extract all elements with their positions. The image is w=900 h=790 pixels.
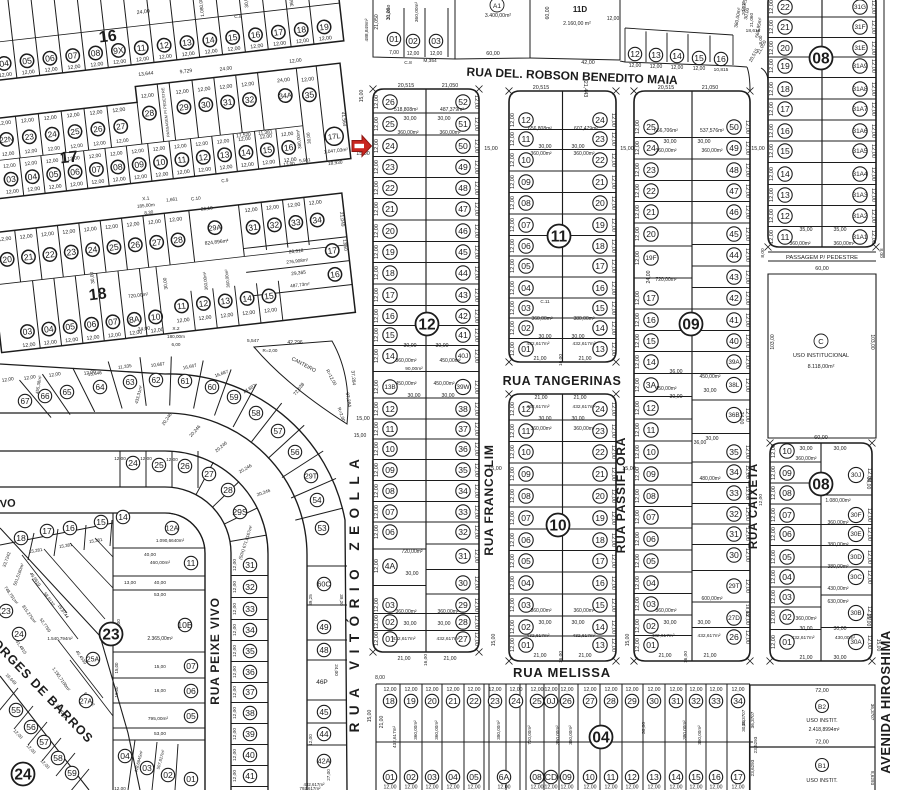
svg-text:12,00: 12,00 [374,598,380,612]
svg-text:51: 51 [458,119,468,129]
svg-text:12,00: 12,00 [635,510,641,524]
svg-text:12,00: 12,00 [114,786,126,790]
svg-text:44: 44 [729,250,739,260]
svg-text:65: 65 [62,388,72,397]
svg-text:30E: 30E [850,531,861,538]
svg-text:12,00: 12,00 [744,313,750,327]
svg-text:12,00: 12,00 [635,334,641,348]
svg-text:21: 21 [385,204,395,214]
svg-text:58: 58 [251,409,261,418]
svg-text:32: 32 [269,219,280,230]
svg-text:30,00: 30,00 [539,144,552,150]
svg-text:12,00: 12,00 [610,196,616,210]
svg-text:50: 50 [729,122,739,132]
svg-text:16: 16 [595,283,605,293]
svg-text:720,00m²: 720,00m² [655,277,676,283]
svg-text:10: 10 [521,447,531,457]
svg-text:33: 33 [458,507,468,517]
svg-text:12,00: 12,00 [610,175,616,189]
svg-text:12,00: 12,00 [866,508,872,522]
svg-text:08: 08 [385,486,395,496]
svg-text:12,00: 12,00 [374,402,380,416]
svg-text:19F: 19F [645,255,656,262]
svg-text:VO: VO [0,497,17,510]
svg-text:26: 26 [729,632,739,642]
svg-text:0J: 0J [546,696,555,706]
svg-text:18: 18 [88,285,108,304]
svg-text:12,00: 12,00 [561,785,574,790]
svg-text:360,00m²: 360,00m² [414,1,420,22]
svg-text:USO INSTIT.: USO INSTIT. [806,778,837,784]
svg-text:12,00: 12,00 [635,355,641,369]
svg-text:518,808m²: 518,808m² [394,107,418,113]
svg-text:12,00: 12,00 [771,635,777,649]
svg-text:36: 36 [458,444,468,454]
svg-text:12,00: 12,00 [866,550,872,564]
svg-text:14: 14 [780,169,790,179]
svg-text:12,00: 12,00 [870,230,876,244]
svg-text:30,00: 30,00 [698,139,711,145]
svg-text:03: 03 [427,772,437,782]
svg-text:01: 01 [385,772,395,782]
svg-text:14: 14 [672,51,682,61]
svg-text:12,00: 12,00 [510,402,516,416]
svg-text:60,00: 60,00 [815,266,829,272]
svg-text:07: 07 [521,513,531,523]
svg-text:12,00: 12,00 [629,63,642,69]
svg-text:06: 06 [646,534,656,544]
svg-text:12,00: 12,00 [114,456,126,461]
svg-text:1.080,00m²: 1.080,00m² [825,498,851,504]
svg-text:12,00: 12,00 [447,687,460,693]
svg-text:21,050: 21,050 [386,4,392,19]
svg-text:12,00: 12,00 [626,687,639,693]
svg-text:12,00: 12,00 [635,184,641,198]
svg-text:04: 04 [448,772,458,782]
svg-text:12,00: 12,00 [510,218,516,232]
svg-text:24: 24 [14,629,24,639]
svg-text:12,00: 12,00 [473,505,479,519]
svg-text:11: 11 [522,134,531,144]
svg-text:360,00m²: 360,00m² [827,520,848,526]
svg-text:12,00: 12,00 [710,785,723,790]
svg-text:30,00: 30,00 [539,416,552,422]
svg-text:01: 01 [521,640,531,650]
svg-text:22: 22 [595,155,605,165]
svg-text:05: 05 [186,711,196,721]
svg-text:12,00: 12,00 [635,378,641,392]
svg-text:23: 23 [102,626,120,643]
svg-text:12,00: 12,00 [635,227,641,241]
svg-text:460,00m²: 460,00m² [150,560,171,566]
svg-text:360,00m²: 360,00m² [395,609,416,615]
svg-text:12,00: 12,00 [510,511,516,525]
svg-text:12,00: 12,00 [744,270,750,284]
svg-text:53: 53 [317,524,327,533]
svg-text:38: 38 [245,708,255,718]
svg-text:12,00: 12,00 [635,251,641,265]
svg-text:12,00: 12,00 [610,424,616,438]
svg-text:12,00: 12,00 [769,167,775,181]
svg-text:12,00: 12,00 [610,132,616,146]
svg-text:29: 29 [627,696,637,706]
svg-text:16: 16 [283,142,294,153]
svg-text:07: 07 [186,661,196,671]
svg-text:C.8: C.8 [404,60,412,66]
svg-text:12,00: 12,00 [610,342,616,356]
svg-text:11: 11 [177,154,187,165]
svg-text:33: 33 [245,604,255,614]
svg-text:12,00: 12,00 [405,687,418,693]
svg-text:27: 27 [116,122,127,132]
svg-text:03: 03 [385,600,395,610]
svg-text:31A7: 31A7 [853,106,868,113]
svg-text:21,050: 21,050 [442,83,459,89]
svg-text:12,00: 12,00 [744,630,750,644]
svg-text:180,00m: 180,00m [167,334,185,339]
svg-text:05: 05 [48,169,59,180]
svg-text:31: 31 [671,696,681,706]
svg-text:04: 04 [120,751,130,761]
svg-text:27D: 27D [728,615,740,622]
svg-text:33: 33 [729,488,739,498]
svg-text:12,00: 12,00 [870,0,876,14]
svg-text:12,00: 12,00 [635,120,641,134]
svg-text:27A: 27A [80,699,93,706]
svg-text:05: 05 [521,556,531,566]
svg-text:12,00: 12,00 [473,95,479,109]
svg-text:22: 22 [780,2,790,12]
svg-text:12,00: 12,00 [744,355,750,369]
svg-text:10: 10 [646,447,656,457]
svg-text:36: 36 [245,667,255,677]
svg-text:12,00: 12,00 [744,205,750,219]
svg-text:8,00: 8,00 [878,248,884,258]
svg-text:12,00: 12,00 [473,525,479,539]
svg-text:12,00: 12,00 [610,239,616,253]
svg-text:06: 06 [782,529,792,539]
svg-text:24,00: 24,00 [738,412,744,425]
svg-text:04: 04 [0,58,10,69]
svg-text:12,00: 12,00 [690,687,703,693]
svg-text:432,617m²: 432,617m² [573,404,596,410]
svg-text:12,00: 12,00 [468,687,481,693]
svg-text:30,00: 30,00 [800,446,813,452]
svg-text:12,00: 12,00 [607,16,620,22]
svg-text:12,00: 12,00 [426,687,439,693]
svg-text:12,00: 12,00 [670,785,683,790]
svg-text:48: 48 [319,646,329,655]
svg-text:360,00m²: 360,00m² [573,608,594,614]
svg-text:30,00: 30,00 [243,0,250,8]
svg-text:12,00: 12,00 [744,334,750,348]
svg-text:432,617m²: 432,617m² [698,633,721,639]
svg-text:2.160,00 m²: 2.160,00 m² [563,21,591,27]
svg-text:15,00: 15,00 [114,662,119,674]
svg-text:09: 09 [562,772,572,782]
svg-text:06: 06 [70,166,81,177]
svg-text:29T: 29T [305,472,318,481]
svg-text:12,00: 12,00 [635,141,641,155]
svg-text:16: 16 [595,578,605,588]
svg-text:360,00m²: 360,00m² [795,456,816,462]
svg-text:20,515: 20,515 [741,1,746,15]
svg-text:12,00: 12,00 [769,0,775,14]
svg-text:15,00: 15,00 [354,433,367,439]
svg-text:19: 19 [595,513,605,523]
svg-text:12,00: 12,00 [635,205,641,219]
svg-text:26: 26 [130,239,141,250]
svg-text:B1: B1 [818,763,826,770]
svg-text:12,00: 12,00 [473,380,479,394]
svg-text:600,00m²: 600,00m² [701,596,722,602]
svg-text:12,00: 12,00 [635,401,641,415]
svg-text:360,00m²: 360,00m² [697,725,702,745]
svg-text:25: 25 [385,119,395,129]
svg-text:3.400,00m²: 3.400,00m² [485,13,512,19]
svg-text:24: 24 [595,404,605,414]
svg-text:12,00: 12,00 [405,785,418,790]
svg-text:12,00: 12,00 [648,687,661,693]
svg-text:12,00: 12,00 [374,95,380,109]
svg-text:46P: 46P [316,679,328,686]
svg-text:30,00: 30,00 [438,116,451,122]
svg-text:36,00: 36,00 [694,440,707,446]
svg-text:RUA TANGERINAS: RUA TANGERINAS [503,374,622,388]
svg-text:11D: 11D [573,5,587,14]
svg-text:12,00: 12,00 [426,785,439,790]
svg-text:12,00: 12,00 [384,785,397,790]
svg-text:28: 28 [458,617,468,627]
svg-text:13: 13 [595,640,605,650]
svg-text:10: 10 [549,517,566,534]
svg-text:40: 40 [729,336,739,346]
svg-text:27: 27 [585,696,595,706]
svg-text:12,00: 12,00 [374,505,380,519]
svg-text:656,808m²: 656,808m² [528,126,552,132]
svg-text:15,00: 15,00 [356,416,370,422]
svg-text:13B: 13B [384,384,395,391]
svg-text:12: 12 [198,298,209,309]
svg-text:31E: 31E [854,45,865,52]
svg-text:12,00: 12,00 [473,181,479,195]
svg-text:12: 12 [198,152,209,163]
svg-text:17: 17 [595,261,605,271]
svg-text:23: 23 [595,134,605,144]
svg-text:9X: 9X [113,45,125,56]
svg-text:12,00: 12,00 [510,113,516,127]
svg-text:12,00: 12,00 [671,65,684,71]
svg-text:41: 41 [458,330,468,340]
svg-text:12,00: 12,00 [510,342,516,356]
svg-text:12,00: 12,00 [232,603,238,615]
svg-text:450,00m²: 450,00m² [699,374,720,380]
svg-text:12,00: 12,00 [232,645,238,657]
svg-text:35: 35 [245,646,255,656]
svg-text:12,00: 12,00 [374,202,380,216]
svg-text:RUA CAIXETA: RUA CAIXETA [748,463,760,549]
svg-text:12,00: 12,00 [610,281,616,295]
svg-text:12,00: 12,00 [771,550,777,564]
svg-text:AVENIDA HIROSHIMA: AVENIDA HIROSHIMA [878,630,893,774]
svg-text:30,00: 30,00 [834,446,847,452]
svg-text:21,00: 21,00 [704,653,717,659]
svg-text:12,00: 12,00 [769,124,775,138]
svg-text:30,00: 30,00 [704,388,717,394]
svg-text:30,00: 30,00 [539,334,552,340]
svg-text:12,00: 12,00 [635,576,641,590]
svg-text:08: 08 [782,488,792,498]
svg-text:02: 02 [408,36,418,46]
svg-text:30,00: 30,00 [436,343,449,349]
svg-text:12: 12 [630,49,640,59]
svg-text:12,00: 12,00 [650,64,663,70]
svg-text:13: 13 [219,149,230,160]
svg-text:12,00: 12,00 [374,463,380,477]
svg-text:12,00: 12,00 [374,117,380,131]
svg-text:03: 03 [431,36,441,46]
svg-text:42A: 42A [318,757,331,766]
svg-text:13,00: 13,00 [124,580,136,586]
svg-text:C: C [818,337,824,346]
svg-text:17: 17 [273,27,284,38]
svg-text:103,00: 103,00 [869,334,875,350]
svg-text:12,00: 12,00 [870,59,876,73]
svg-text:12,00: 12,00 [430,51,443,57]
svg-text:22N: 22N [0,134,14,145]
svg-text:44: 44 [458,268,468,278]
svg-text:12,00: 12,00 [866,527,872,541]
svg-text:12,00: 12,00 [648,785,661,790]
svg-text:03: 03 [22,326,33,337]
svg-text:27: 27 [204,469,214,479]
svg-text:12,00: 12,00 [744,378,750,392]
svg-text:12,00: 12,00 [232,624,238,636]
svg-text:14: 14 [595,323,605,333]
svg-text:11: 11 [136,42,146,53]
svg-text:10B: 10B [177,620,193,630]
svg-text:15: 15 [595,600,605,610]
svg-text:20: 20 [427,696,437,706]
svg-text:12,00: 12,00 [545,785,558,790]
svg-text:17: 17 [42,526,52,536]
svg-text:12,00: 12,00 [374,484,380,498]
svg-text:18: 18 [595,535,605,545]
svg-text:21,00: 21,00 [659,653,672,659]
svg-text:14: 14 [646,357,656,367]
svg-text:792,617m²: 792,617m² [300,786,322,790]
svg-text:36,3707: 36,3707 [870,704,875,721]
svg-text:18: 18 [780,84,790,94]
svg-text:12,00: 12,00 [771,570,777,584]
svg-text:53,00: 53,00 [154,592,166,598]
svg-text:12,00: 12,00 [610,598,616,612]
svg-text:09: 09 [782,468,792,478]
svg-text:30: 30 [649,696,659,706]
svg-text:42,00: 42,00 [581,60,595,66]
svg-text:31: 31 [729,529,739,539]
svg-text:12,00: 12,00 [374,160,380,174]
svg-text:31: 31 [458,551,468,561]
svg-text:12,00: 12,00 [473,349,479,363]
svg-text:12,00: 12,00 [769,230,775,244]
svg-text:45: 45 [729,229,739,239]
svg-text:4A: 4A [385,561,396,571]
svg-text:12,00: 12,00 [473,288,479,302]
svg-text:30F: 30F [850,512,861,519]
svg-text:12,00: 12,00 [374,442,380,456]
svg-text:30C: 30C [850,574,862,581]
svg-text:12,00: 12,00 [510,445,516,459]
svg-text:30,00: 30,00 [641,722,647,734]
svg-text:12,00: 12,00 [610,153,616,167]
svg-text:21: 21 [448,696,458,706]
svg-text:12,00: 12,00 [744,248,750,262]
svg-text:432,617m²: 432,617m² [527,341,550,347]
svg-text:12,00: 12,00 [769,102,775,116]
svg-text:15,00: 15,00 [488,466,502,472]
svg-text:28: 28 [144,108,155,119]
svg-text:30: 30 [200,99,211,110]
svg-text:12,00: 12,00 [610,638,616,652]
svg-text:8,00: 8,00 [758,35,763,44]
svg-text:12,00: 12,00 [744,291,750,305]
svg-text:360,00m²: 360,00m² [530,608,551,614]
svg-text:8,30: 8,30 [144,210,154,216]
svg-text:06: 06 [186,686,196,696]
svg-text:C.8: C.8 [234,14,242,20]
svg-text:31G: 31G [854,4,866,11]
svg-text:62: 62 [151,376,161,385]
svg-text:66: 66 [40,392,50,401]
svg-text:8.118,00m²: 8.118,00m² [808,364,835,370]
svg-text:17: 17 [646,293,656,303]
svg-text:30,00: 30,00 [406,571,419,577]
svg-text:12,00: 12,00 [374,139,380,153]
svg-text:12,00: 12,00 [635,291,641,305]
svg-text:09: 09 [521,177,531,187]
svg-text:12,00: 12,00 [610,218,616,232]
svg-text:12,00: 12,00 [407,51,420,57]
svg-text:360,00m²: 360,00m² [789,241,810,247]
svg-text:31A3: 31A3 [853,192,868,199]
svg-text:18: 18 [595,241,605,251]
svg-text:12,00: 12,00 [635,489,641,503]
svg-text:19: 19 [595,220,605,230]
svg-text:360,00m²: 360,00m² [701,148,722,154]
svg-text:40,00: 40,00 [144,552,156,558]
svg-text:34: 34 [458,486,468,496]
svg-text:21,00: 21,00 [579,653,592,659]
svg-text:12,00: 12,00 [732,785,745,790]
svg-text:12,00: 12,00 [870,144,876,158]
svg-text:17L: 17L [327,131,341,141]
svg-text:39,20: 39,20 [339,594,344,606]
svg-text:23: 23 [385,162,395,172]
svg-text:13: 13 [595,344,605,354]
svg-text:12,00: 12,00 [561,687,574,693]
svg-text:12,00: 12,00 [769,41,775,55]
svg-text:35,00: 35,00 [800,227,813,233]
svg-text:08: 08 [812,50,830,67]
svg-text:12,00: 12,00 [610,554,616,568]
svg-text:32: 32 [244,94,255,105]
svg-text:14: 14 [205,34,216,45]
svg-text:12,00: 12,00 [473,328,479,342]
svg-text:26: 26 [93,124,104,134]
svg-text:08: 08 [112,161,123,172]
svg-text:10: 10 [385,444,395,454]
